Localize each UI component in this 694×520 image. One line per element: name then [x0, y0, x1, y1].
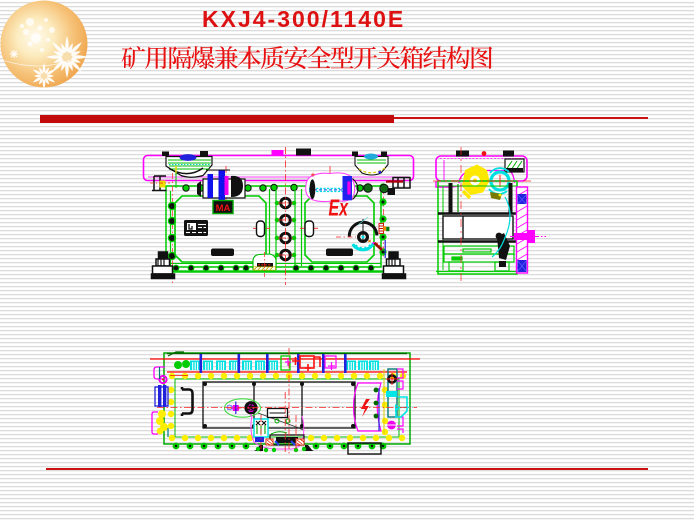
svg-text:MA: MA [216, 203, 231, 214]
svg-text:Ex: Ex [329, 195, 349, 221]
